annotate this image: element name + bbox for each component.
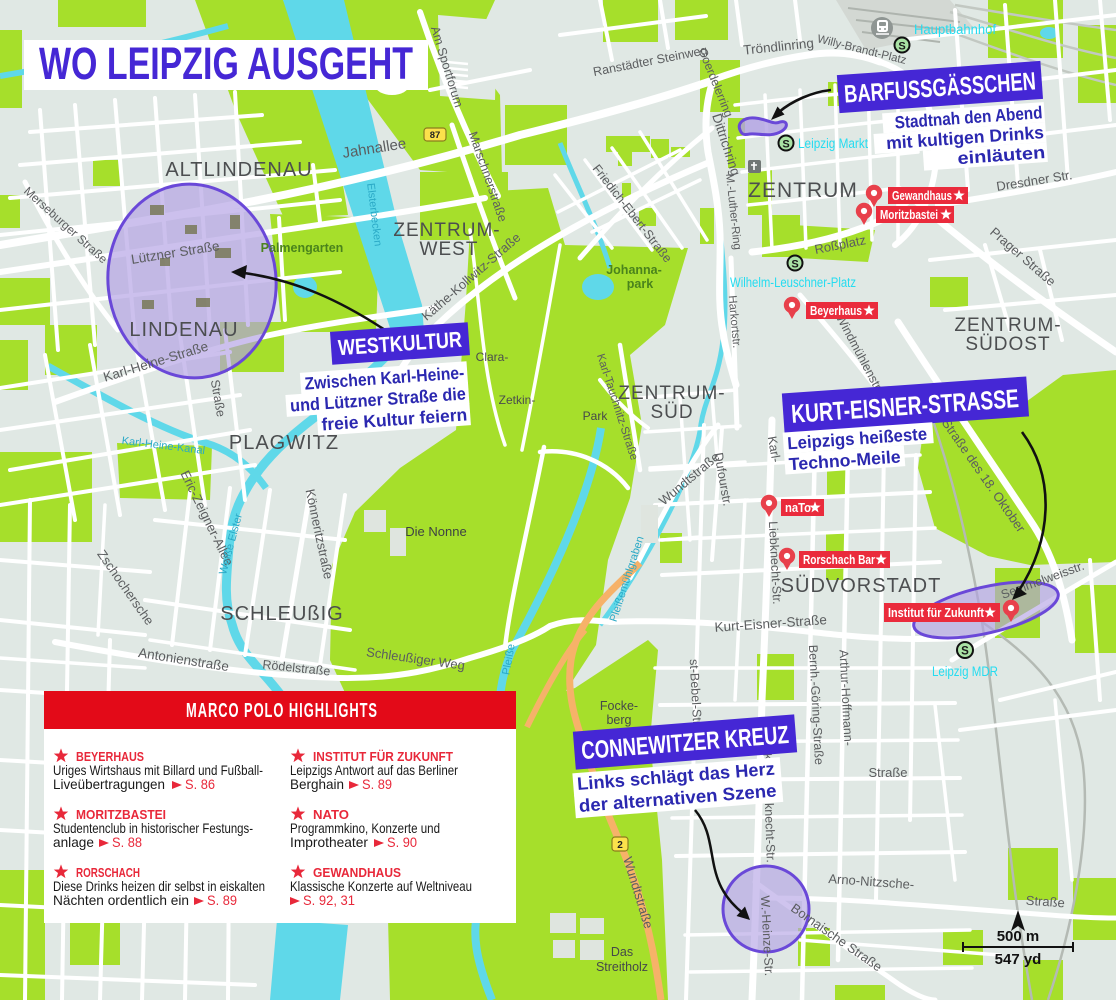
svg-text:S: S xyxy=(898,41,905,53)
svg-text:berg: berg xyxy=(606,713,631,727)
svg-text:ZENTRUM-: ZENTRUM- xyxy=(618,383,725,404)
svg-text:BEYERHAUS: BEYERHAUS xyxy=(76,749,144,764)
svg-text:SÜDOST: SÜDOST xyxy=(965,334,1050,355)
svg-text:Straße: Straße xyxy=(1025,893,1065,911)
svg-text:LINDENAU: LINDENAU xyxy=(129,319,238,341)
svg-text:MARCO POLO HIGHLIGHTS: MARCO POLO HIGHLIGHTS xyxy=(186,700,378,722)
svg-text:NATO: NATO xyxy=(313,807,349,822)
svg-text:Beyerhaus: Beyerhaus xyxy=(810,304,862,318)
svg-text:RORSCHACH: RORSCHACH xyxy=(76,865,140,880)
svg-text:WO LEIPZIG AUSGEHT: WO LEIPZIG AUSGEHT xyxy=(39,38,413,89)
svg-text:naTo: naTo xyxy=(785,501,811,515)
svg-text:SCHLEUßIG: SCHLEUßIG xyxy=(220,603,343,625)
svg-text:S. 89: S. 89 xyxy=(207,893,237,908)
svg-text:ALTLINDENAU: ALTLINDENAU xyxy=(165,159,312,181)
svg-text:Streitholz: Streitholz xyxy=(596,960,648,974)
svg-text:Straße: Straße xyxy=(868,765,907,780)
svg-text:Zetkin-: Zetkin- xyxy=(499,393,536,407)
svg-text:ZENTRUM-: ZENTRUM- xyxy=(954,315,1061,336)
svg-text:500 m: 500 m xyxy=(997,928,1040,945)
svg-text:Johanna-: Johanna- xyxy=(606,263,662,277)
svg-text:Institut für Zukunft: Institut für Zukunft xyxy=(888,605,985,620)
svg-text:Studentenclub in historischer: Studentenclub in historischer Festungs- xyxy=(53,821,253,836)
svg-text:S: S xyxy=(782,139,789,151)
svg-text:Berghain: Berghain xyxy=(290,777,344,792)
svg-text:Focke-: Focke- xyxy=(600,699,638,713)
svg-text:Leipzig MDR: Leipzig MDR xyxy=(932,664,998,679)
svg-text:Palmengarten: Palmengarten xyxy=(261,241,344,255)
svg-text:Improtheater: Improtheater xyxy=(290,835,368,850)
svg-text:Rorschach Bar: Rorschach Bar xyxy=(803,553,875,567)
svg-text:547 yd: 547 yd xyxy=(995,951,1042,968)
svg-text:Die Nonne: Die Nonne xyxy=(405,524,466,539)
svg-text:S. 90: S. 90 xyxy=(387,835,417,850)
svg-text:Liveübertragungen: Liveübertragungen xyxy=(53,777,165,792)
svg-text:ZENTRUM-: ZENTRUM- xyxy=(393,220,500,241)
svg-text:Gewandhaus: Gewandhaus xyxy=(892,189,952,203)
svg-text:Leipzig Markt: Leipzig Markt xyxy=(798,136,868,151)
svg-text:ZENTRUM: ZENTRUM xyxy=(748,179,858,202)
svg-text:MORITZBASTEI: MORITZBASTEI xyxy=(76,807,166,822)
svg-text:S. 92, 31: S. 92, 31 xyxy=(303,893,355,908)
svg-text:87: 87 xyxy=(430,130,441,141)
svg-text:Park: Park xyxy=(583,409,609,423)
svg-text:S: S xyxy=(961,646,969,658)
svg-text:Diese Drinks heizen dir selbst: Diese Drinks heizen dir selbst in eiskal… xyxy=(53,879,265,894)
svg-text:INSTITUT FÜR ZUKUNFT: INSTITUT FÜR ZUKUNFT xyxy=(313,749,453,764)
svg-text:S: S xyxy=(791,259,798,271)
svg-text:S. 86: S. 86 xyxy=(185,777,215,792)
svg-text:Wilhelm-Leuschner-Platz: Wilhelm-Leuschner-Platz xyxy=(730,275,856,290)
svg-text:Uriges Wirtshaus mit Billard u: Uriges Wirtshaus mit Billard und Fußball… xyxy=(53,763,263,778)
svg-text:Clara-: Clara- xyxy=(476,350,509,364)
svg-text:Moritzbastei: Moritzbastei xyxy=(880,208,938,222)
svg-text:Leipzigs Antwort auf das Berli: Leipzigs Antwort auf das Berliner xyxy=(290,763,458,778)
svg-text:GEWANDHAUS: GEWANDHAUS xyxy=(313,865,401,880)
svg-text:S. 89: S. 89 xyxy=(362,777,392,792)
svg-text:2: 2 xyxy=(617,840,623,851)
svg-text:SÜD: SÜD xyxy=(650,402,693,423)
svg-text:Programmkino, Konzerte und: Programmkino, Konzerte und xyxy=(290,821,440,836)
svg-text:WEST: WEST xyxy=(420,239,479,260)
svg-text:S. 88: S. 88 xyxy=(112,835,142,850)
svg-text:Das: Das xyxy=(611,945,633,959)
svg-text:anlage: anlage xyxy=(53,835,94,850)
svg-text:Nächten ordentlich ein: Nächten ordentlich ein xyxy=(53,893,189,908)
svg-text:Klassische Konzerte auf Weltni: Klassische Konzerte auf Weltniveau xyxy=(290,879,472,894)
svg-text:Hauptbahnhof: Hauptbahnhof xyxy=(914,22,996,37)
svg-text:park: park xyxy=(627,277,653,291)
svg-text:SÜDVORSTADT: SÜDVORSTADT xyxy=(781,575,942,597)
